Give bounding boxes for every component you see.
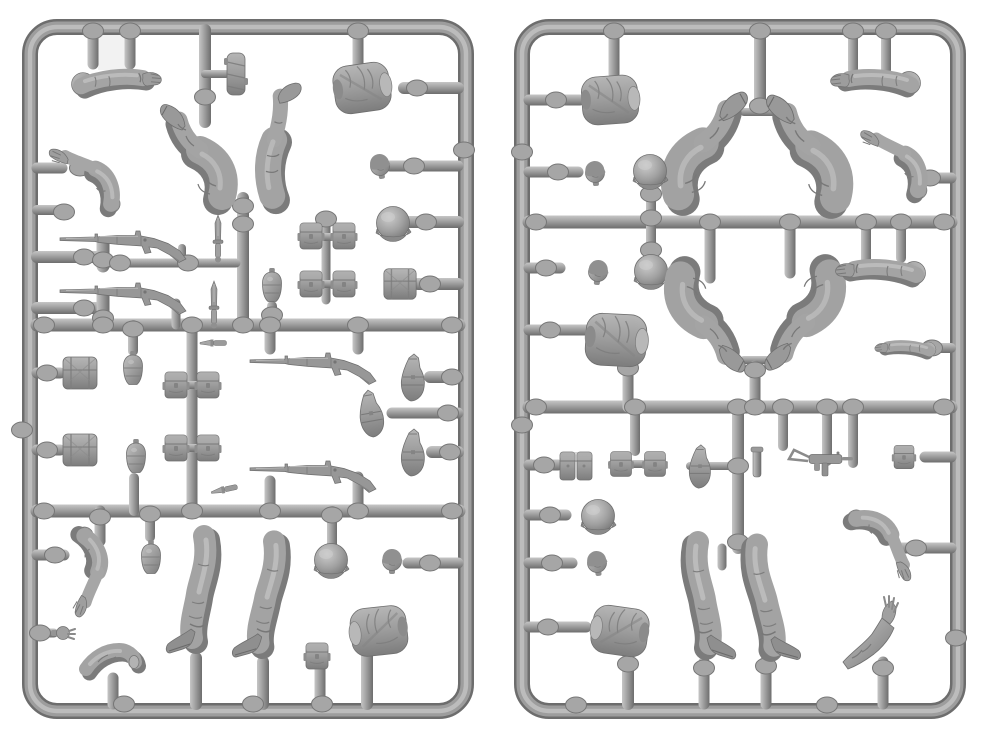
sprue-stub <box>920 452 957 463</box>
gate-pad <box>123 321 144 337</box>
gate-pad <box>243 696 264 712</box>
sprue-stub <box>201 70 230 78</box>
part-pack <box>63 357 97 389</box>
gate-pad <box>54 204 75 220</box>
gate-pad <box>542 555 563 571</box>
gate-pad <box>546 92 567 108</box>
gate-pad <box>322 507 343 523</box>
gate-pad <box>45 547 66 563</box>
sprue-runner <box>187 320 198 517</box>
gate-pad <box>694 660 715 676</box>
gate-pad <box>512 417 533 433</box>
sprue-stub <box>129 473 139 516</box>
gate-pad <box>120 23 141 39</box>
part-pouch <box>163 435 190 461</box>
gate-pad <box>891 214 912 230</box>
gate-pad <box>566 697 587 713</box>
gate-pad <box>442 503 463 519</box>
part-pouch <box>892 445 916 468</box>
gate-pad <box>37 365 58 381</box>
gate-pad <box>745 399 766 415</box>
part-small-cyl <box>751 447 763 477</box>
gate-pad <box>817 697 838 713</box>
part-pouch <box>642 452 668 477</box>
gate-pad <box>548 164 569 180</box>
gate-pad <box>526 399 547 415</box>
part-torso <box>347 604 411 658</box>
part-pouch <box>331 271 358 297</box>
gate-pad <box>114 696 135 712</box>
gate-pad <box>934 399 955 415</box>
part-torso <box>583 312 649 367</box>
gate-pad <box>348 23 369 39</box>
sprue-stub <box>361 649 373 710</box>
gate-pad <box>442 369 463 385</box>
gate-pad <box>641 210 662 226</box>
part-torso <box>330 60 395 116</box>
gate-pad <box>745 362 766 378</box>
part-pouch <box>298 223 325 249</box>
gate-pad <box>625 399 646 415</box>
gate-pad <box>312 696 333 712</box>
gate-pad <box>843 399 864 415</box>
gate-pad <box>348 317 369 333</box>
gate-pad <box>233 317 254 333</box>
sprue-stub <box>718 544 727 571</box>
gate-pad <box>195 89 216 105</box>
gate-pad <box>934 214 955 230</box>
part-pack <box>63 434 97 466</box>
gate-pad <box>512 144 533 160</box>
gate-pad <box>90 509 111 525</box>
gate-pad <box>182 503 203 519</box>
gate-pad <box>260 503 281 519</box>
gate-pad <box>540 322 561 338</box>
part-pouch <box>195 372 222 398</box>
gate-pad <box>83 23 104 39</box>
gate-pad <box>30 625 51 641</box>
gate-pad <box>843 23 864 39</box>
gate-pad <box>93 317 114 333</box>
gate-pad <box>534 457 555 473</box>
part-equip-small <box>224 53 248 95</box>
gate-pad <box>233 198 254 214</box>
sprue-runner <box>732 401 744 554</box>
sprue-photo-svg <box>0 0 1000 738</box>
gate-pad <box>604 23 625 39</box>
gate-pad <box>773 399 794 415</box>
gate-pad <box>526 214 547 230</box>
gate-pad <box>74 300 95 316</box>
gate-pad <box>856 214 877 230</box>
gate-pad <box>348 503 369 519</box>
gate-pad <box>140 506 161 522</box>
part-pouch <box>331 223 358 249</box>
gate-pad <box>420 276 441 292</box>
part-pack <box>384 269 416 299</box>
gate-pad <box>420 555 441 571</box>
sprue-stub <box>190 652 202 710</box>
gate-pad <box>876 23 897 39</box>
gate-pad <box>750 23 771 39</box>
gate-pad <box>906 540 927 556</box>
sprue-stub <box>32 163 68 174</box>
gate-pad <box>728 458 749 474</box>
background <box>0 0 1000 738</box>
part-torso <box>587 603 652 659</box>
gate-pad <box>438 405 459 421</box>
gate-pad <box>442 317 463 333</box>
part-torso <box>579 74 641 126</box>
gate-pad <box>110 255 131 271</box>
part-pouch <box>304 643 331 669</box>
gate-pad <box>34 317 55 333</box>
gate-pad <box>12 422 33 438</box>
gate-pad <box>416 214 437 230</box>
gate-pad <box>946 630 967 646</box>
gate-pad <box>540 507 561 523</box>
gate-pad <box>440 444 461 460</box>
gate-pad <box>34 503 55 519</box>
gate-pad <box>454 142 475 158</box>
gate-pad <box>538 619 559 635</box>
gate-pad <box>233 216 254 232</box>
gate-pad <box>817 399 838 415</box>
gate-pad <box>780 214 801 230</box>
part-pouch <box>195 435 222 461</box>
gate-pad <box>182 317 203 333</box>
part-pouch <box>298 271 325 297</box>
gate-pad <box>404 158 425 174</box>
photo-canvas <box>0 0 1000 738</box>
gate-pad <box>37 442 58 458</box>
gate-pad <box>618 656 639 672</box>
gate-pad <box>700 214 721 230</box>
gate-pad <box>873 660 894 676</box>
gate-pad <box>260 317 281 333</box>
gate-pad <box>74 249 95 265</box>
gate-pad <box>407 80 428 96</box>
part-pouch <box>608 452 634 477</box>
gate-pad <box>536 260 557 276</box>
part-pouch <box>163 372 190 398</box>
